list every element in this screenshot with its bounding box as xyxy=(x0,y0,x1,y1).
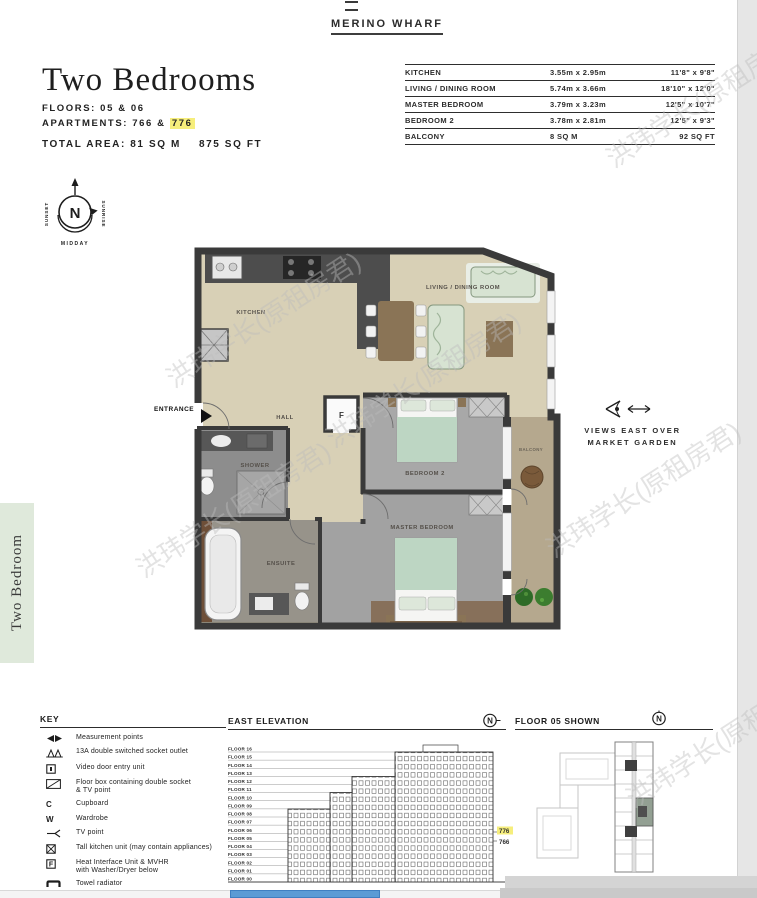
views-note: VIEWS EAST OVER MARKET GARDEN xyxy=(555,425,710,449)
imperial-dims: 12'5" x 10'7" xyxy=(645,97,715,113)
floor-label: FLOOR 13 xyxy=(228,771,252,776)
list-item: Measurement points xyxy=(40,734,226,743)
living-label: LIVING / DINING ROOM xyxy=(426,285,500,291)
table-row: BEDROOM 23.78m x 2.81m12'5" x 9'3" xyxy=(405,113,715,129)
entrance-label: ENTRANCE xyxy=(154,406,194,413)
imperial-dims: 92 SQ FT xyxy=(645,129,715,145)
north-indicator-icon: N xyxy=(481,712,501,729)
table-row: LIVING / DINING ROOM5.74m x 3.66m18'10" … xyxy=(405,81,715,97)
floorplan: KITCHEN LIVING / DINING ROOM HALL SHOWER… xyxy=(185,245,565,640)
brochure-page: 洪玮学长(原租房君) 洪玮学长(原租房君) 洪玮学长(原租房君) 洪玮学长(原租… xyxy=(0,0,757,898)
views-note-line2: MARKET GARDEN xyxy=(555,437,710,449)
key-item-label: Measurement points xyxy=(76,734,143,741)
compass-north: N xyxy=(70,205,81,222)
key-item-label2: & TV point xyxy=(76,787,111,794)
floor05-keyplan xyxy=(515,732,743,876)
floor-label: FLOOR 07 xyxy=(228,820,252,825)
list-item: Video door entry unit xyxy=(40,764,226,774)
side-tab-label: Two Bedroom xyxy=(9,534,26,631)
room-name: KITCHEN xyxy=(405,65,550,81)
key-item-label: Wardrobe xyxy=(76,815,108,822)
table-row: KITCHEN3.55m x 2.95m11'8" x 9'8" xyxy=(405,65,715,81)
view-direction-icon xyxy=(600,396,660,422)
floor-label: FLOOR 03 xyxy=(228,852,252,857)
floor-label: FLOOR 10 xyxy=(228,795,252,800)
key-item-label: Video door entry unit xyxy=(76,764,145,771)
imperial-dims: 11'8" x 9'8" xyxy=(645,65,715,81)
floor-label: FLOOR 06 xyxy=(228,828,252,833)
floor-label: FLOOR 15 xyxy=(228,755,252,760)
compass-sunset-label: SUNSET xyxy=(44,202,49,226)
tall-kitchen-unit-icon xyxy=(40,844,76,854)
imperial-dims: 18'10" x 12'0" xyxy=(645,81,715,97)
cupboard-symbol: C xyxy=(40,800,76,809)
unit-776-label: 776 xyxy=(499,828,510,835)
f-unit-label: F xyxy=(339,411,344,420)
towel-radiator-icon xyxy=(40,880,76,888)
total-area-imperial: 875 SQ FT xyxy=(199,139,262,150)
page-title: Two Bedrooms xyxy=(42,62,362,99)
total-area-metric: TOTAL AREA: 81 SQ M xyxy=(42,139,181,150)
brand-title: MERINO WHARF xyxy=(331,18,443,35)
metric-dims: 8 SQ M xyxy=(550,129,645,145)
svg-text:F: F xyxy=(49,862,54,869)
keyplan-building-outline xyxy=(537,753,615,858)
views-note-line1: VIEWS EAST OVER xyxy=(555,425,710,437)
wardrobe-symbol: W xyxy=(40,815,76,824)
scrollbar-right-area xyxy=(500,888,757,898)
list-item: Towel radiator xyxy=(40,880,226,888)
key-item-label2: with Washer/Dryer below xyxy=(76,867,158,874)
key-item-label: Floor box containing double socket xyxy=(76,779,191,786)
apartment-highlight: 776 xyxy=(170,118,195,129)
room-name: BALCONY xyxy=(405,129,550,145)
floor-label: FLOOR 11 xyxy=(228,787,252,792)
tv-point-icon xyxy=(40,829,76,838)
room-name: LIVING / DINING ROOM xyxy=(405,81,550,97)
key-item-label: Cupboard xyxy=(76,800,108,807)
floor-label: FLOOR 05 xyxy=(228,836,252,841)
floor05-title: FLOOR 05 SHOWN xyxy=(515,716,713,730)
key-title: KEY xyxy=(40,714,226,728)
total-area-line: TOTAL AREA: 81 SQ M875 SQ FT xyxy=(42,139,362,150)
floor-box-icon xyxy=(40,779,76,789)
title-block: Two Bedrooms FLOORS: 05 & 06 APARTMENTS:… xyxy=(42,62,362,150)
bedroom2-label: BEDROOM 2 xyxy=(405,471,445,477)
key-item-label: Heat Interface Unit & MVHR xyxy=(76,859,169,866)
list-item: CCupboard xyxy=(40,800,226,809)
key-item-label: 13A double switched socket outlet xyxy=(76,748,188,755)
video-door-entry-icon xyxy=(40,764,76,774)
balcony-label: BALCONY xyxy=(519,447,543,452)
room-name: MASTER BEDROOM xyxy=(405,97,550,113)
key-item-label: TV point xyxy=(76,829,104,836)
table-row: MASTER BEDROOM3.79m x 3.23m12'5" x 10'7" xyxy=(405,97,715,113)
keyplan-tower xyxy=(615,742,653,872)
compass-midday-label: MIDDAY xyxy=(61,241,89,247)
dining-table xyxy=(366,301,426,361)
key-item-label: Tall kitchen unit (may contain appliance… xyxy=(76,844,212,851)
key-legend: KEY Measurement points 13A double switch… xyxy=(40,714,226,898)
shower-label: SHOWER xyxy=(240,463,269,469)
list-item: FHeat Interface Unit & MVHRwith Washer/D… xyxy=(40,859,226,875)
hall-label: HALL xyxy=(276,415,293,421)
floor-label: FLOOR 02 xyxy=(228,860,252,865)
apartments-prefix: APARTMENTS: 766 & xyxy=(42,118,170,129)
kitchen-label: KITCHEN xyxy=(236,310,265,316)
floor-label: FLOOR 08 xyxy=(228,812,252,817)
east-elevation-title: EAST ELEVATION xyxy=(228,716,506,730)
key-item-label: Towel radiator xyxy=(76,880,122,887)
ensuite-label: ENSUITE xyxy=(267,561,296,567)
imperial-dims: 12'5" x 9'3" xyxy=(645,113,715,129)
list-item: TV point xyxy=(40,829,226,838)
list-item: WWardrobe xyxy=(40,815,226,824)
floor-label: FLOOR 12 xyxy=(228,779,252,784)
list-item: 13A double switched socket outlet xyxy=(40,748,226,758)
svg-text:N: N xyxy=(487,717,493,726)
page-top-mark xyxy=(345,1,358,11)
metric-dims: 5.74m x 3.66m xyxy=(550,81,645,97)
floor-label: FLOOR 14 xyxy=(228,763,252,768)
floor-label: FLOOR 09 xyxy=(228,803,252,808)
table-row: BALCONY8 SQ M92 SQ FT xyxy=(405,129,715,145)
list-item: Tall kitchen unit (may contain appliance… xyxy=(40,844,226,854)
compass-sunrise-label: SUNRISE xyxy=(101,200,106,227)
heat-interface-unit-icon: F xyxy=(40,859,76,869)
elevation-svg: FLOOR 16FLOOR 15FLOOR 14FLOOR 13FLOOR 12… xyxy=(228,730,513,890)
svg-text:N: N xyxy=(656,715,662,724)
dimensions-table: KITCHEN3.55m x 2.95m11'8" x 9'8" LIVING … xyxy=(405,64,715,145)
socket-outlet-icon xyxy=(40,748,76,758)
metric-dims: 3.55m x 2.95m xyxy=(550,65,645,81)
horizontal-scrollbar-thumb[interactable] xyxy=(230,890,380,898)
floors-line: FLOORS: 05 & 06 xyxy=(42,103,362,114)
master-label: MASTER BEDROOM xyxy=(390,525,453,531)
floor-label: FLOOR 04 xyxy=(228,844,252,849)
measurement-points-icon xyxy=(40,734,76,743)
floor-label: FLOOR 00 xyxy=(228,877,252,882)
metric-dims: 3.79m x 3.23m xyxy=(550,97,645,113)
apartments-line: APARTMENTS: 766 & 776 xyxy=(42,118,362,129)
side-tab-two-bedroom: Two Bedroom xyxy=(0,503,34,663)
metric-dims: 3.78m x 2.81m xyxy=(550,113,645,129)
list-item: Floor box containing double socket& TV p… xyxy=(40,779,226,795)
floor-label: FLOOR 16 xyxy=(228,747,252,752)
north-indicator-icon: N xyxy=(650,710,670,727)
compass-icon: N SUNSET SUNRISE MIDDAY xyxy=(36,178,114,256)
floor-label: FLOOR 01 xyxy=(228,868,252,873)
elevation-building: 776 766 xyxy=(288,745,513,882)
room-name: BEDROOM 2 xyxy=(405,113,550,129)
unit-766-label: 766 xyxy=(499,839,510,846)
